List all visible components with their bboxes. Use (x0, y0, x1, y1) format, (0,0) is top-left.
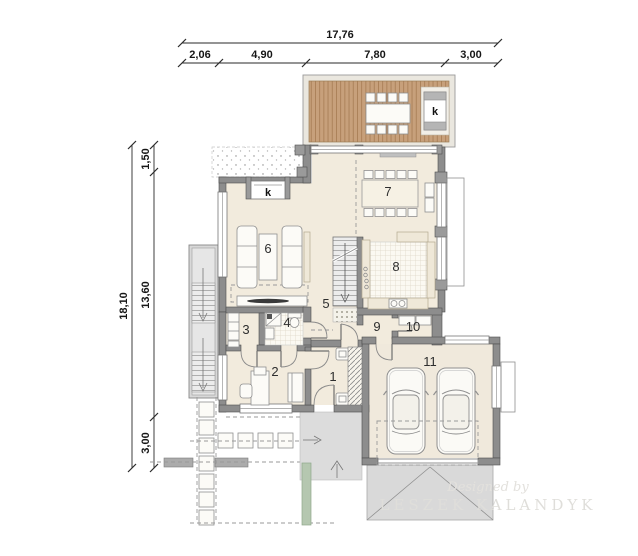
paver-path-vertical (199, 402, 214, 525)
window-garage-right (492, 362, 515, 412)
exterior-stair (189, 245, 218, 398)
terrace-dining-set (366, 93, 410, 134)
dim-total-depth: 18,10 (118, 292, 130, 320)
room-label-7: 7 (384, 184, 391, 199)
dim-seg-300l: 3,00 (140, 432, 152, 453)
hall-wardrobe-hatch (348, 347, 362, 405)
floor-plan-page: 17,76 2,06 4,90 7,80 3,00 18,10 1,50 13,… (0, 0, 638, 556)
room-label-4: 4 (283, 315, 290, 330)
watermark-author: LESZEK KALANDYK (379, 496, 596, 514)
room-label-1: 1 (329, 369, 336, 384)
dim-seg-206: 2,06 (189, 49, 210, 61)
patio-stipple (212, 147, 303, 177)
car-2 (434, 368, 479, 454)
retaining-wall-segment-2 (215, 458, 248, 467)
window-sill-right (447, 178, 464, 286)
dim-seg-300t: 3,00 (460, 49, 481, 61)
terrace-fireplace-label: k (432, 106, 439, 118)
room-label-9: 9 (373, 319, 380, 334)
terrace-fireplace-box: k (424, 92, 446, 130)
paver-path-horizontal (218, 433, 293, 448)
dimension-lines-left: 18,10 1,50 13,60 3,00 (118, 141, 158, 472)
dimension-lines-top: 17,76 2,06 4,90 7,80 3,00 (178, 29, 502, 67)
window-sill-dining-top (380, 153, 416, 157)
dim-seg-1360: 13,60 (140, 281, 152, 309)
room-label-2: 2 (271, 364, 278, 379)
living-fireplace-label: k (265, 187, 272, 199)
room-label-5: 5 (322, 296, 329, 311)
room-label-3: 3 (242, 322, 249, 337)
dim-seg-150: 1,50 (140, 148, 152, 169)
room-label-11: 11 (423, 354, 437, 369)
hedge-strip (302, 463, 311, 525)
room-label-8: 8 (392, 259, 399, 274)
garage-door (378, 459, 478, 463)
window-dining-right (437, 183, 446, 227)
car-1 (384, 368, 429, 454)
room-label-6: 6 (264, 241, 271, 256)
terrace: k (303, 75, 455, 147)
window-living-left (218, 192, 227, 277)
window-office-left (218, 355, 227, 400)
floor-plan-drawing: 17,76 2,06 4,90 7,80 3,00 18,10 1,50 13,… (0, 0, 638, 556)
dim-seg-780: 7,80 (364, 49, 385, 61)
window-kitchen-right (437, 237, 446, 280)
window-terrace-glass-wall (311, 146, 437, 153)
room-label-10: 10 (406, 319, 420, 334)
retaining-wall-segment-1 (164, 458, 193, 467)
dim-seg-490: 4,90 (251, 49, 272, 61)
kitchen-sink (389, 299, 407, 308)
tv-console (237, 296, 307, 306)
wardrobe-room3 (228, 313, 239, 347)
watermark-designed-by: Designed by (446, 480, 529, 495)
dim-total-width: 17,76 (326, 29, 354, 41)
window-garage-top (445, 336, 489, 344)
interior-stair (333, 237, 357, 322)
